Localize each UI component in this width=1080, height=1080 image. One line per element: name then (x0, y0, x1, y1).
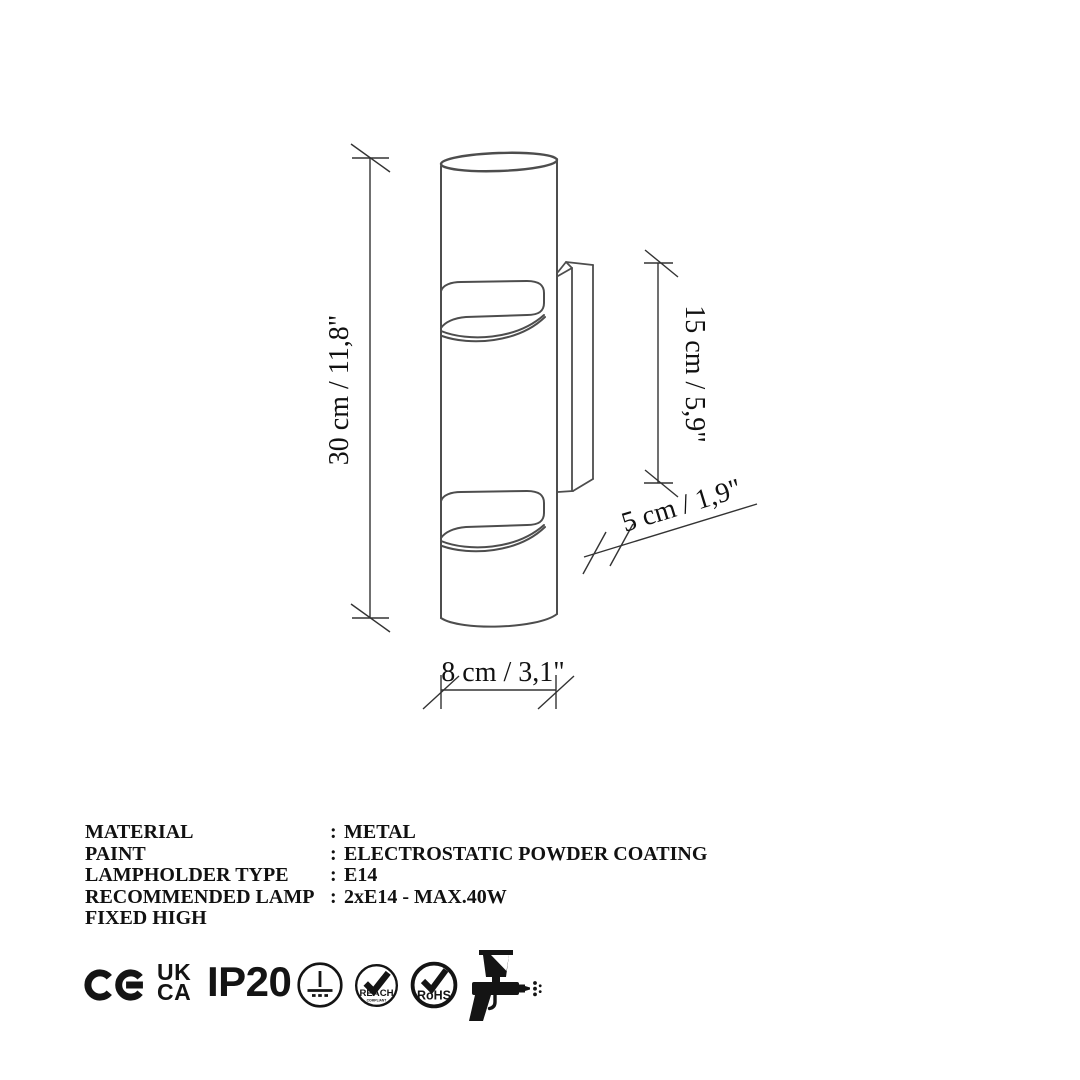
rohs-icon: RoHS (410, 961, 458, 1009)
ukca-mark-icon: UK CA (157, 962, 191, 1002)
ip-rating-label: IP20 (207, 958, 291, 1006)
spec-row-lampholder: LAMPHOLDER TYPE : E14 (85, 865, 707, 887)
upper-slot (441, 281, 544, 328)
spec-value: ELECTROSTATIC POWDER COATING (344, 844, 707, 866)
rohs-label: RoHS (417, 989, 451, 1003)
dim-label-bracket-height: 15 cm / 5,9" (679, 305, 710, 442)
dim-line-bracket-height (644, 250, 678, 497)
spec-row-recommended-lamp: RECOMMENDED LAMP : 2xE14 - MAX.40W (85, 887, 707, 909)
spec-row-fixed-high: FIXED HIGH (85, 908, 707, 930)
lamp-cylinder (441, 151, 558, 627)
spec-label: LAMPHOLDER TYPE (85, 865, 330, 887)
spec-label: PAINT (85, 844, 330, 866)
spec-colon (330, 908, 344, 930)
spec-label: RECOMMENDED LAMP (85, 887, 330, 909)
dim-label-width: 8 cm / 3,1" (441, 657, 564, 688)
ukca-line1: UK (157, 962, 191, 982)
lamp-technical-drawing: 30 cm / 11,8" 15 cm / 5,9" 5 cm / 1,9" 8… (0, 0, 1080, 780)
dim-line-height (351, 144, 390, 632)
spec-value: E14 (344, 865, 377, 887)
spec-colon: : (330, 844, 344, 866)
spec-label: MATERIAL (85, 822, 330, 844)
dim-label-depth: 5 cm / 1,9" (618, 473, 745, 539)
protective-earth-icon (296, 961, 344, 1009)
spec-value: METAL (344, 822, 416, 844)
spec-table: MATERIAL : METAL PAINT : ELECTROSTATIC P… (85, 822, 707, 930)
spec-row-material: MATERIAL : METAL (85, 822, 707, 844)
dim-label-height: 30 cm / 11,8" (324, 315, 355, 465)
lower-slot (441, 491, 544, 538)
spec-colon: : (330, 887, 344, 909)
product-spec-sheet: 30 cm / 11,8" 15 cm / 5,9" 5 cm / 1,9" 8… (0, 0, 1080, 1080)
spray-gun-icon (466, 950, 542, 1022)
ukca-line2: CA (157, 982, 191, 1002)
reach-sub-label: COMPLIANT (367, 999, 387, 1003)
spec-label: FIXED HIGH (85, 908, 330, 930)
spec-colon: : (330, 865, 344, 887)
spec-value: 2xE14 - MAX.40W (344, 887, 507, 909)
spec-colon: : (330, 822, 344, 844)
wall-bracket (558, 262, 593, 492)
reach-compliant-icon: REACH COMPLIANT (354, 963, 399, 1008)
spec-row-paint: PAINT : ELECTROSTATIC POWDER COATING (85, 844, 707, 866)
reach-label: REACH (359, 988, 393, 999)
ce-mark-icon (84, 963, 152, 1007)
